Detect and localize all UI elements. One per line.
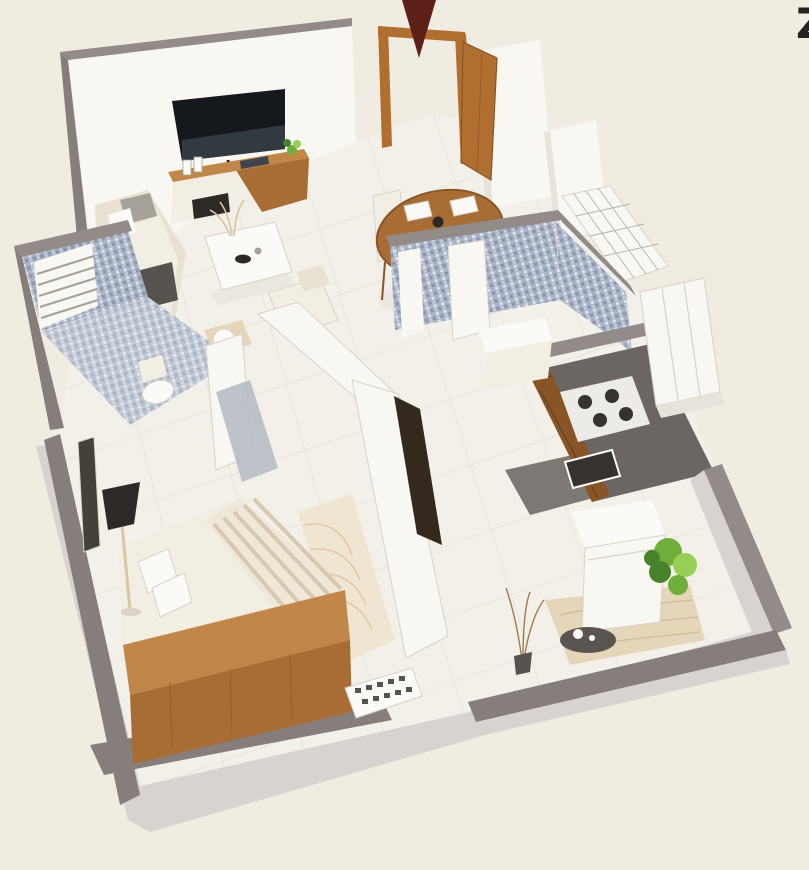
floor-plan-svg: Z — [0, 0, 809, 870]
branch-pot — [514, 652, 532, 675]
table-centerpiece — [433, 217, 444, 228]
bathroom2-door — [448, 240, 490, 340]
kitchen-vanity-box — [478, 318, 552, 390]
decor-bowl — [235, 255, 251, 264]
door-leaf — [461, 42, 497, 180]
partial-letter: Z — [796, 0, 809, 48]
photo-frame — [183, 160, 191, 175]
bathroom2-column — [398, 248, 424, 338]
decor-cup — [255, 248, 262, 255]
floor-plan-render: Z — [0, 0, 809, 870]
balcony-stool — [560, 627, 616, 653]
teapot — [573, 629, 583, 639]
cup — [589, 635, 595, 641]
photo-frame — [194, 157, 202, 172]
